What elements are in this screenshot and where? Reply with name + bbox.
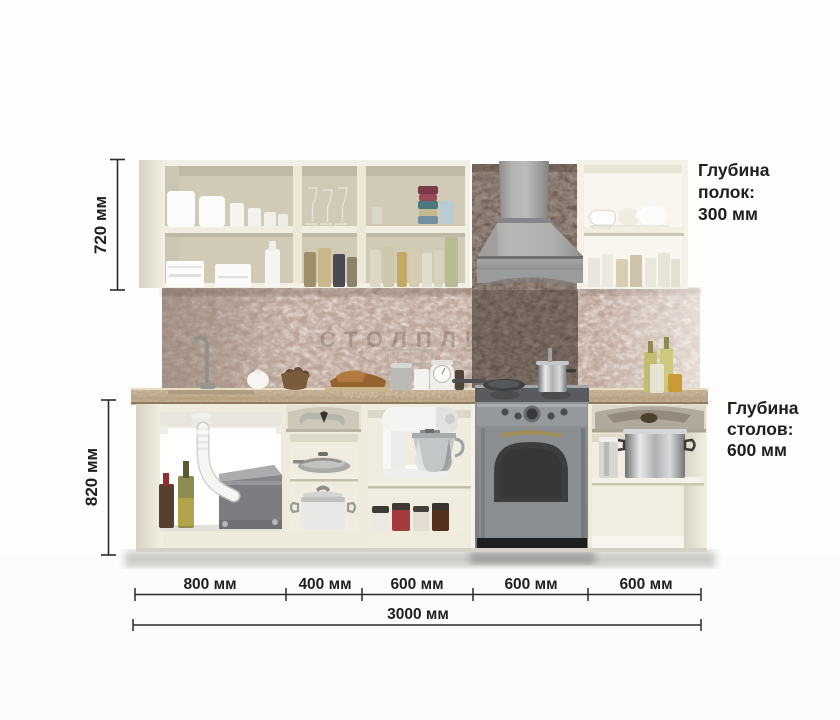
svg-text:400 мм: 400 мм bbox=[298, 576, 351, 593]
svg-text:Глубина: Глубина bbox=[727, 398, 799, 418]
svg-text:720 мм: 720 мм bbox=[91, 196, 110, 254]
svg-text:600 мм: 600 мм bbox=[727, 440, 787, 460]
svg-text:столов:: столов: bbox=[727, 419, 794, 439]
svg-text:600 мм: 600 мм bbox=[619, 576, 672, 593]
svg-text:СТОЛПЛИТ: СТОЛПЛИТ bbox=[320, 327, 513, 352]
svg-text:600 мм: 600 мм bbox=[504, 576, 557, 593]
svg-text:820 мм: 820 мм bbox=[82, 448, 101, 506]
svg-text:800 мм: 800 мм bbox=[183, 576, 236, 593]
svg-text:300 мм: 300 мм bbox=[698, 204, 758, 224]
svg-text:3000 мм: 3000 мм bbox=[387, 606, 449, 623]
svg-text:600 мм: 600 мм bbox=[390, 576, 443, 593]
svg-text:полок:: полок: bbox=[698, 182, 755, 202]
svg-text:Глубина: Глубина bbox=[698, 160, 770, 180]
